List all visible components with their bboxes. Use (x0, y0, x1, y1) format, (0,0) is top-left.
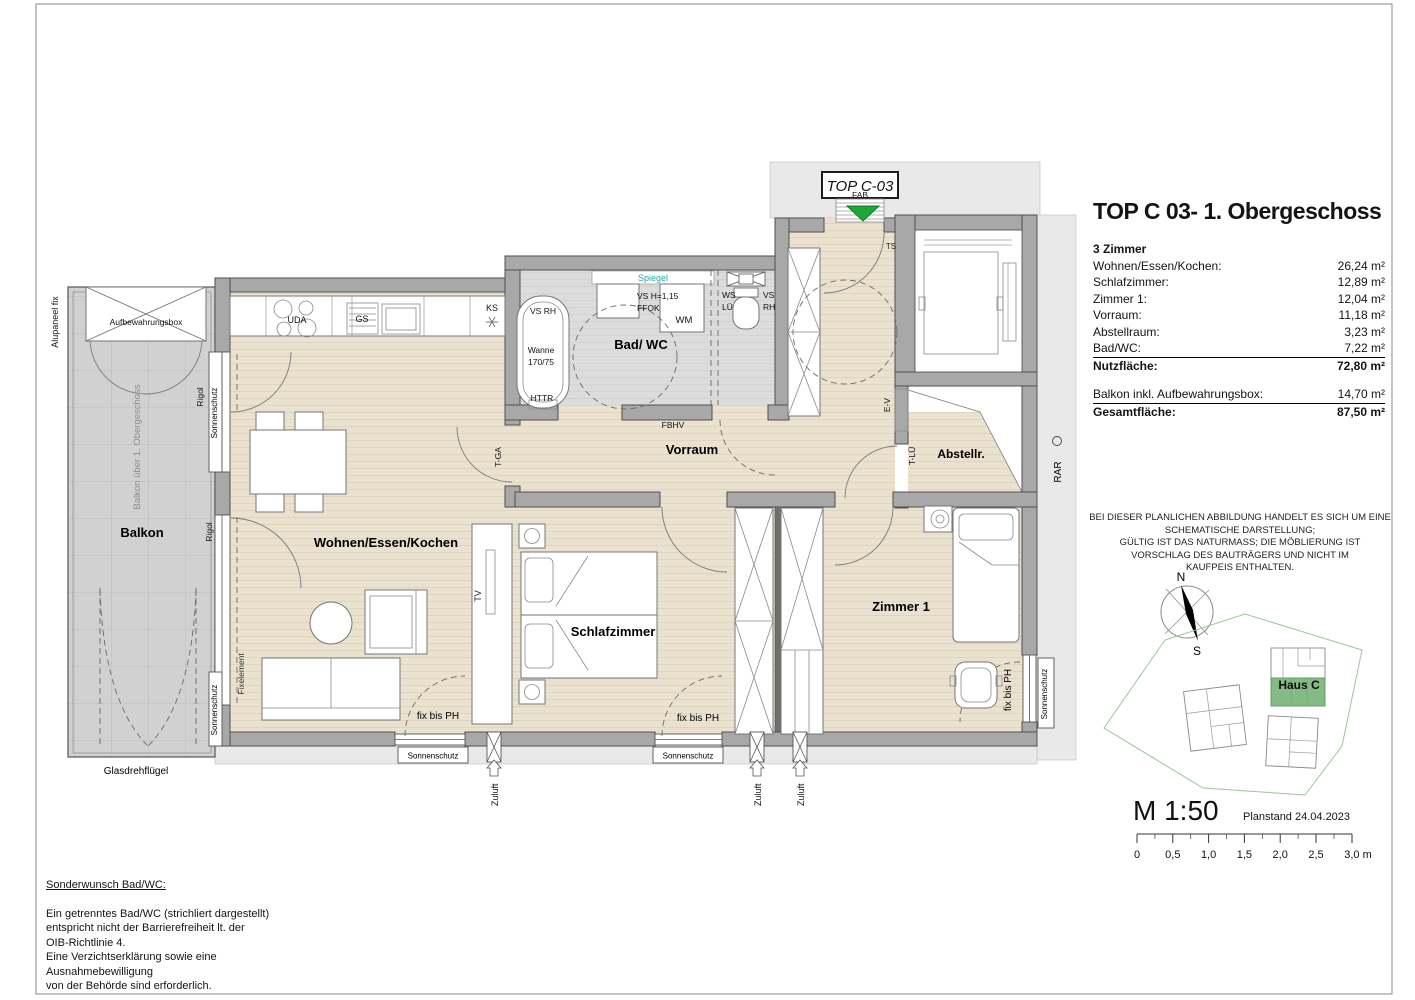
tlue-label: T-LÜ (907, 447, 917, 465)
rh-label: RH (763, 302, 775, 312)
table-row: Vorraum: 11,18 m² (1093, 307, 1385, 324)
row-label: Schlafzimmer: (1093, 274, 1169, 291)
kitchen: UDA GS KS (230, 296, 505, 337)
vsh-label: VS H=1,15 (637, 291, 679, 301)
row-label: Wohnen/Essen/Kochen: (1093, 258, 1222, 275)
row-label: Balkon inkl. Aufbewahrungsbox: (1093, 386, 1263, 403)
vs-label: VS (763, 290, 775, 300)
ev-label: E-V (882, 398, 892, 413)
rigol-label-1: Rigol (195, 387, 205, 406)
nightstand (924, 506, 952, 532)
disclaimer-line: GÜLTIG IST DAS NATURMASS; DIE MÖBLIERUNG… (1083, 537, 1397, 550)
rar-label: RAR (1053, 461, 1064, 482)
fbhv-label: FBHV (662, 420, 685, 430)
site-building-3 (1266, 716, 1319, 769)
row-label: Nutzfläche: (1093, 358, 1158, 375)
table-row: Bad/WC: 7,22 m² (1093, 340, 1385, 358)
scale-label: M 1:50 (1133, 795, 1219, 827)
sonnenschutz-bottom-2: Sonnenschutz (663, 752, 714, 761)
tv-label: TV (473, 590, 483, 602)
single-bed (953, 508, 1019, 642)
wardrobe (735, 508, 773, 734)
scale-tick-1: 0,5 (1165, 849, 1180, 861)
tv-board: TV (472, 524, 512, 724)
desk-chair (950, 662, 1002, 708)
fab-label: FAB (852, 190, 868, 200)
vsrh-tub-label: VS RH (530, 306, 556, 316)
ks-label: KS (486, 303, 498, 313)
glasdreh-label: Glasdrehflügel (104, 766, 168, 777)
toilet (733, 288, 759, 329)
floor-plan-drawing: TOP C-03 FAB TS (0, 0, 1415, 1000)
row-value: 26,24 m² (1338, 258, 1385, 275)
row-value: 12,04 m² (1338, 291, 1385, 308)
fixbisph-label-2: fix bis PH (677, 713, 719, 724)
row-value: 11,18 m² (1339, 307, 1385, 324)
nightstand (519, 680, 545, 704)
row-value: 72,80 m² (1337, 358, 1385, 375)
wanne-size-label: 170/75 (528, 357, 554, 367)
elevator (915, 230, 1022, 372)
balkon-ueber-label: Balkon über 1. Obergeschoss (132, 384, 143, 509)
double-bed (521, 552, 657, 678)
room-label-schlafzimmer: Schlafzimmer (571, 624, 656, 639)
zuluft-vent: Zuluft (793, 732, 807, 806)
zuluft-vent: Zuluft (487, 732, 501, 806)
washbasin (597, 284, 639, 318)
row-label: Bad/WC: (1093, 340, 1141, 357)
note-line: Eine Verzichtserklärung sowie eine (46, 950, 269, 965)
coffee-table (310, 602, 352, 644)
page-title: TOP C 03- 1. Obergeschoss (1093, 198, 1385, 225)
note-heading: Sonderwunsch Bad/WC: (46, 878, 269, 893)
scale-tick-2: 1,0 (1201, 849, 1216, 861)
spiegel-label: Spiegel (638, 273, 668, 283)
scale-tick-6: 3,0 m (1344, 849, 1372, 861)
table-row: Wohnen/Essen/Kochen: 26,24 m² (1093, 258, 1385, 275)
row-value: 12,89 m² (1338, 274, 1385, 291)
table-row: Zimmer 1: 12,04 m² (1093, 291, 1385, 308)
sonnenschutz-right: Sonnenschutz (1040, 669, 1049, 720)
table-row: Schlafzimmer: 12,89 m² (1093, 274, 1385, 291)
row-label: Abstellraum: (1093, 324, 1160, 341)
httr-label: HTTR (531, 393, 554, 403)
row-value: 7,22 m² (1344, 340, 1385, 357)
disclaimer: BEI DIESER PLANLICHEN ABBILDUNG HANDELT … (1083, 512, 1397, 575)
disclaimer-line: SCHEMATISCHE DARSTELLUNG; (1083, 525, 1397, 538)
ts-label: TS (886, 242, 896, 251)
compass-needle-icon (1181, 585, 1198, 641)
rigol-label-2: Rigol (204, 522, 214, 541)
mirror: Spiegel (592, 271, 714, 284)
zuluft-label-1: Zuluft (490, 783, 500, 806)
ffok-label: FFOK (637, 303, 660, 313)
room-label-vorraum: Vorraum (666, 442, 719, 457)
wanne-label: Wanne (528, 345, 555, 355)
scale-tick-4: 2,0 (1273, 849, 1288, 861)
sofa (262, 658, 400, 720)
room-label-wohnen: Wohnen/Essen/Kochen (314, 535, 458, 550)
note-line: von der Behörde sind erforderlich. (46, 979, 269, 994)
scale-tick-0: 0 (1134, 849, 1140, 861)
disclaimer-line: VORSCHLAG DES BAUTRÄGERS UND NICHT IM (1083, 550, 1397, 563)
gesamtflaeche-row: Gesamtfläche: 87,50 m² (1093, 404, 1385, 421)
disclaimer-line: BEI DIESER PLANLICHEN ABBILDUNG HANDELT … (1083, 512, 1397, 525)
row-value: 14,70 m² (1338, 386, 1385, 403)
row-label: Vorraum: (1093, 307, 1142, 324)
room-label-zimmer1: Zimmer 1 (872, 599, 930, 614)
special-request-note: Sonderwunsch Bad/WC: Ein getrenntes Bad/… (46, 878, 269, 994)
alupaneel-label: Alupaneel fix (50, 296, 60, 348)
lue-label: LÜ (722, 302, 733, 312)
note-line: entspricht nicht der Barrierefreiheit lt… (46, 921, 269, 936)
row-value: 87,50 m² (1337, 404, 1385, 421)
room-label-badwc: Bad/ WC (614, 337, 668, 352)
sonnenschutz-left-2: Sonnenschutz (210, 685, 219, 736)
site-building-2 (1184, 685, 1247, 751)
aufbox-label: Aufbewahrungsbox (110, 317, 184, 327)
title-block: TOP C 03- 1. Obergeschoss 3 Zimmer Wohne… (1093, 198, 1385, 420)
row-label: Zimmer 1: (1093, 291, 1147, 308)
zuluft-vent: Zuluft (750, 732, 764, 806)
disclaimer-line: KAUFPEIS ENTHALTEN. (1083, 562, 1397, 575)
balkon-row: Balkon inkl. Aufbewahrungsbox: 14,70 m² (1093, 386, 1385, 404)
scale-bar: 0 0,5 1,0 1,5 2,0 2,5 3,0 m (1134, 834, 1372, 861)
site-building-haus-c: Haus C (1271, 648, 1325, 706)
fixelement-label: Fixelement (236, 653, 246, 695)
zuluft-label-3: Zuluft (796, 783, 806, 806)
row-value: 3,23 m² (1344, 324, 1385, 341)
note-line: Ausnahmebewilligung (46, 965, 269, 980)
floor-plan-sheet: TOP C-03 FAB TS (0, 0, 1415, 1000)
row-label: Gesamtfläche: (1093, 404, 1176, 421)
tga-label: T-GA (493, 447, 503, 467)
wm-label: WM (676, 315, 693, 326)
planstand-label: Planstand 24.04.2023 (1243, 811, 1350, 823)
sonnenschutz-bottom-1: Sonnenschutz (408, 752, 459, 761)
scale-tick-5: 2,5 (1308, 849, 1323, 861)
ceiling-vent-icon (727, 272, 765, 286)
room-label-abstellraum: Abstellr. (937, 447, 984, 461)
sonnenschutz-left-1: Sonnenschutz (210, 388, 219, 439)
scale-tick-3: 1,5 (1237, 849, 1252, 861)
gs-label: GS (355, 314, 368, 324)
uda-label: UDA (287, 315, 306, 325)
site-plan: Haus C (1104, 614, 1362, 795)
room-label-balkon: Balkon (120, 525, 163, 540)
wardrobe (781, 508, 823, 734)
nightstand (519, 524, 545, 548)
haus-c-label: Haus C (1278, 678, 1320, 692)
nutzflaeche-row: Nutzfläche: 72,80 m² (1093, 358, 1385, 375)
zuluft-label-2: Zuluft (753, 783, 763, 806)
compass-south: S (1193, 644, 1201, 658)
area-table: 3 Zimmer Wohnen/Essen/Kochen: 26,24 m² S… (1093, 241, 1385, 420)
armchair (365, 590, 427, 654)
ws-label: WS (722, 290, 736, 300)
table-row: Abstellraum: 3,23 m² (1093, 324, 1385, 341)
fixbisph-label-3: fix bis PH (1003, 669, 1014, 711)
note-line: Ein getrenntes Bad/WC (strichliert darge… (46, 907, 269, 922)
fixbisph-label-1: fix bis PH (417, 711, 459, 722)
compass: N S (1161, 570, 1213, 658)
note-line: OIB-Richtlinie 4. (46, 936, 269, 951)
rooms-header: 3 Zimmer (1093, 241, 1385, 258)
balcony (68, 287, 215, 757)
